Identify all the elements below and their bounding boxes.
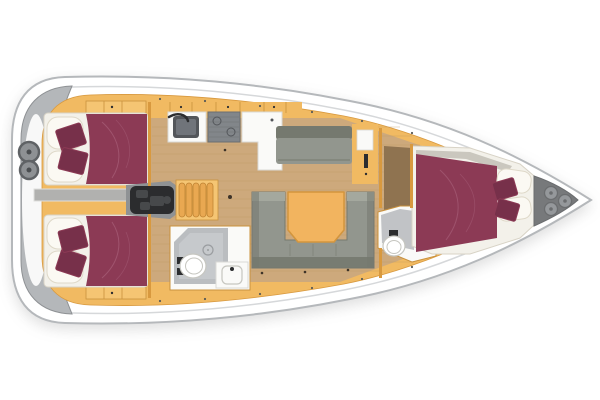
- engine-block: [130, 186, 174, 214]
- galley-upper-cabinets: [152, 102, 302, 113]
- yacht-floorplan: [0, 0, 600, 400]
- aft-head: [170, 226, 250, 290]
- galley-stove: [208, 112, 240, 142]
- forward-cabin: [412, 146, 552, 254]
- helm-wheel-icon: [20, 161, 38, 179]
- deck-hatch-icon: [545, 203, 558, 216]
- vanity-sink: [216, 262, 248, 288]
- cockpit-corridor: [34, 189, 130, 201]
- helm-wheel-icon: [19, 142, 39, 162]
- deck-hatch-icon: [559, 195, 572, 208]
- deck-hatch-icon: [545, 187, 558, 200]
- aft-cabin-starboard: [44, 215, 148, 299]
- salon-settee: [252, 192, 374, 268]
- galley-sink-unit: [168, 112, 206, 142]
- yacht-floorplan-canvas: [0, 0, 600, 400]
- bed-duvet: [86, 114, 147, 184]
- overhead-cabinets: [86, 101, 146, 113]
- companionway-steps: [176, 180, 218, 220]
- starboard-locker-unit: [352, 124, 378, 184]
- bed-mattress: [416, 154, 497, 252]
- aft-cabin-port: [44, 101, 148, 185]
- faucet-icon: [230, 267, 234, 271]
- toilet-icon: [177, 254, 206, 278]
- port-settee: [276, 126, 352, 164]
- salon-table: [288, 192, 344, 242]
- forward-cabin-floor: [384, 146, 412, 210]
